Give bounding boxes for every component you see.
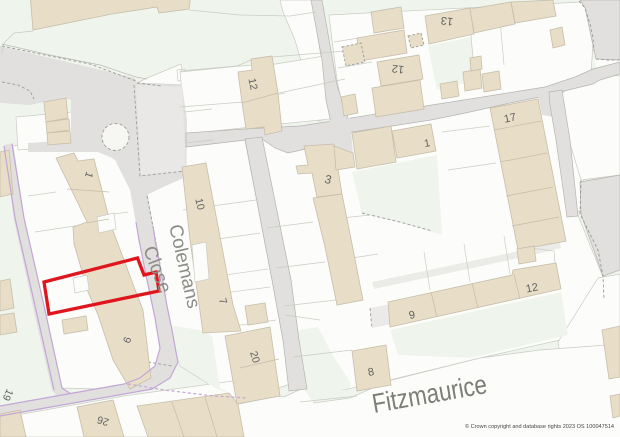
svg-text:© Crown copyright and database: © Crown copyright and database rights 20… xyxy=(465,423,614,430)
svg-text:12: 12 xyxy=(525,281,539,295)
svg-text:17: 17 xyxy=(503,111,517,125)
svg-text:12: 12 xyxy=(391,62,405,75)
svg-text:13: 13 xyxy=(440,14,454,27)
